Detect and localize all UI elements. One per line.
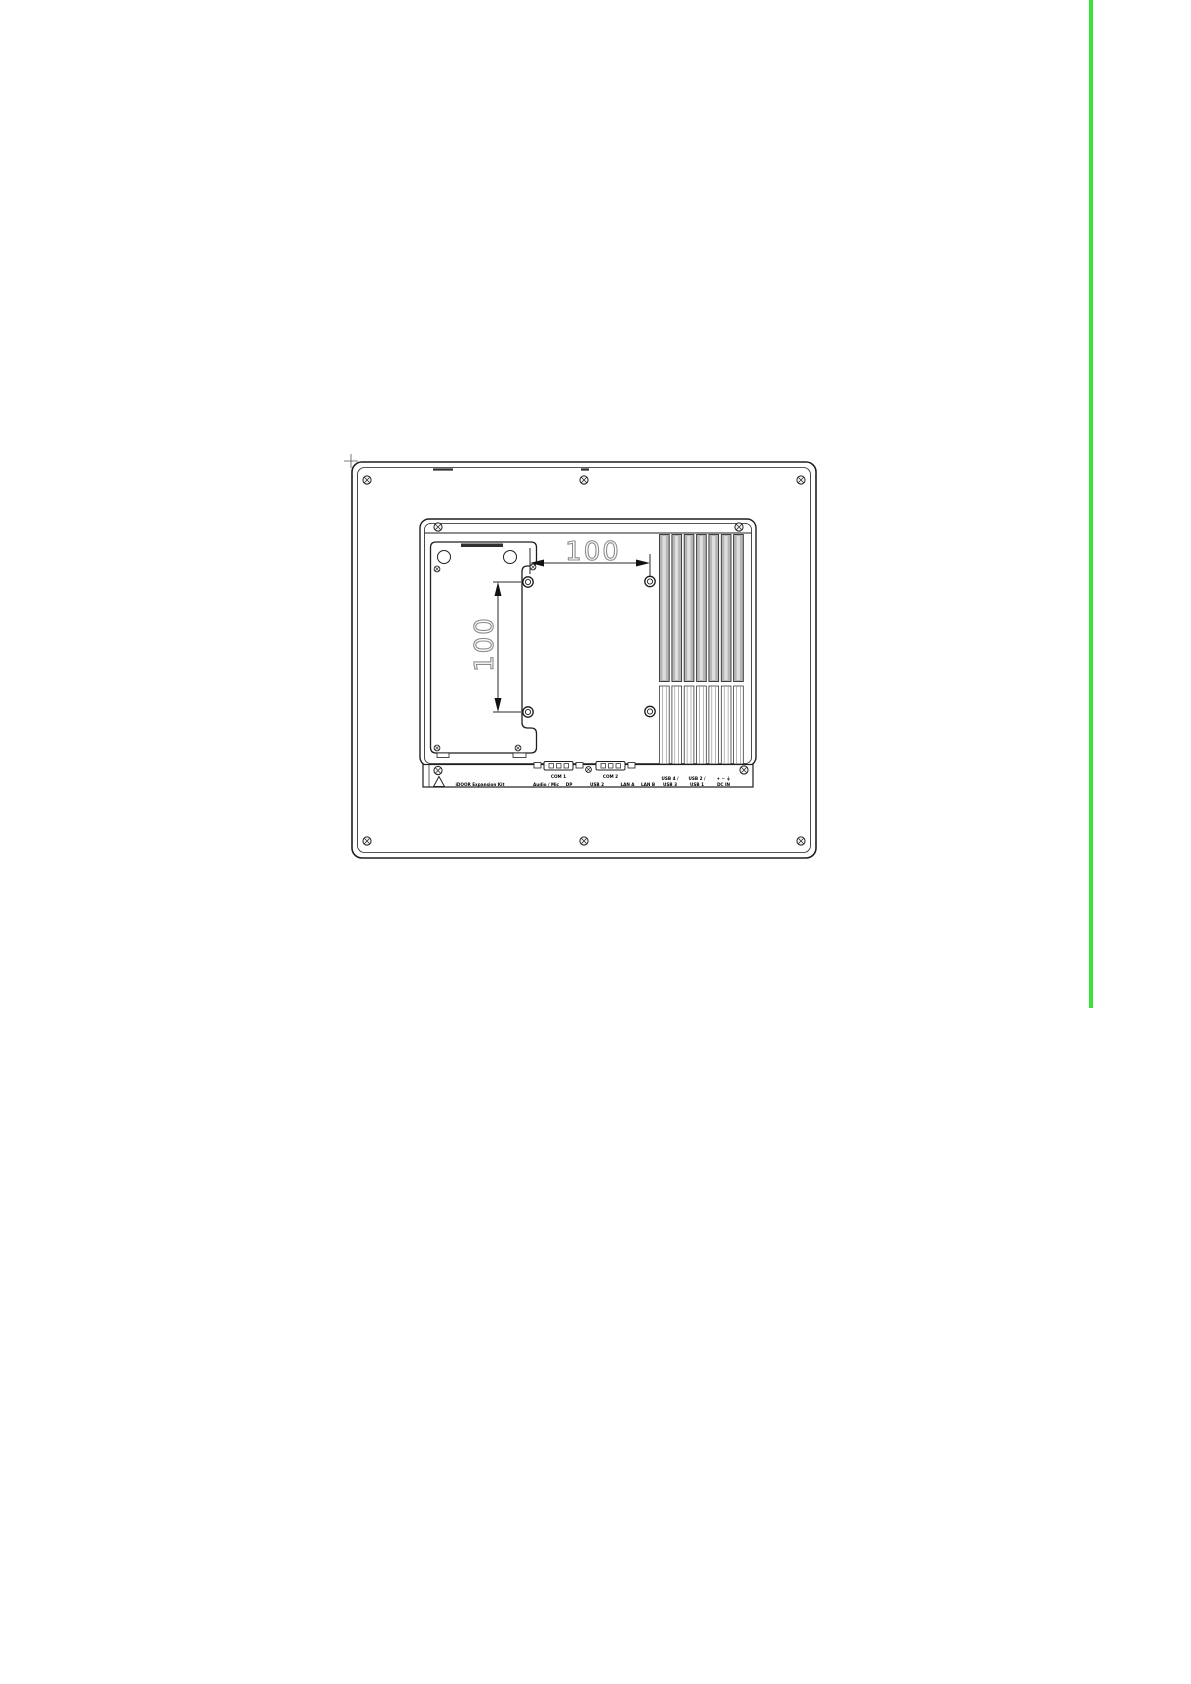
label-usb21-bottom: USB 1 bbox=[690, 782, 704, 787]
screw-icon bbox=[530, 564, 536, 570]
screw-icon bbox=[434, 745, 440, 751]
heatsink-fin bbox=[697, 535, 707, 765]
plate-vent-slot bbox=[461, 544, 503, 548]
label-com1: COM 1 bbox=[551, 774, 566, 779]
com1-connector bbox=[544, 762, 573, 771]
heatsink-fin bbox=[672, 535, 682, 765]
screw-icon bbox=[363, 837, 371, 845]
plate-hole bbox=[504, 551, 517, 564]
heatsink-fins bbox=[660, 535, 744, 765]
label-usb2: USB 2 bbox=[590, 782, 604, 787]
screw-icon bbox=[434, 566, 440, 572]
vesa-hole-bottom-left bbox=[523, 707, 533, 717]
vesa-hole-top-left bbox=[523, 577, 533, 587]
io-strip: COM 1 COM 2 iDOOR Expansion Kit Audio / … bbox=[423, 762, 753, 788]
connector-stub bbox=[628, 763, 635, 769]
label-usb43-bottom: USB 3 bbox=[663, 782, 677, 787]
label-lan-b: LAN B bbox=[641, 782, 655, 787]
screw-icon bbox=[434, 523, 442, 531]
screw-icon bbox=[515, 745, 521, 751]
rear-view-technical-drawing: 100 100 bbox=[0, 0, 1191, 1684]
heatsink-fin bbox=[684, 535, 694, 765]
label-audio: Audio / Mic bbox=[533, 782, 560, 787]
screw-icon bbox=[586, 767, 592, 773]
label-com2: COM 2 bbox=[603, 774, 618, 779]
plate-hole bbox=[438, 551, 451, 564]
label-dp: DP bbox=[566, 782, 573, 787]
manual-page: 100 100 bbox=[0, 0, 1191, 1684]
plate-tab bbox=[513, 753, 526, 758]
label-expansion-kit: iDOOR Expansion Kit bbox=[455, 782, 504, 787]
screw-icon bbox=[363, 476, 371, 484]
screw-icon bbox=[580, 476, 588, 484]
dimension-horizontal-value: 100 bbox=[565, 537, 621, 567]
heatsink-fin bbox=[660, 535, 670, 765]
connector-stub bbox=[534, 763, 541, 769]
screw-icon bbox=[797, 476, 805, 484]
heatsink-fin bbox=[709, 535, 719, 765]
heatsink-fin bbox=[721, 535, 731, 765]
label-lan-a: LAN A bbox=[620, 782, 635, 787]
label-usb43-top: USB 4 / bbox=[662, 776, 679, 781]
connector-stub bbox=[576, 763, 583, 769]
label-usb21-top: USB 2 / bbox=[689, 776, 706, 781]
screw-icon bbox=[740, 766, 748, 774]
vesa-hole-top-right bbox=[645, 576, 655, 586]
screw-icon bbox=[797, 837, 805, 845]
heatsink-fin bbox=[734, 535, 744, 765]
screw-icon bbox=[580, 837, 588, 845]
plate-tab bbox=[437, 753, 449, 758]
screw-icon bbox=[434, 766, 442, 774]
com2-connector bbox=[596, 762, 625, 771]
vesa-hole-bottom-right bbox=[645, 706, 655, 716]
screw-icon bbox=[735, 523, 743, 531]
label-dc-in: DC IN bbox=[717, 782, 731, 787]
dimension-vertical-value: 100 bbox=[470, 616, 500, 672]
